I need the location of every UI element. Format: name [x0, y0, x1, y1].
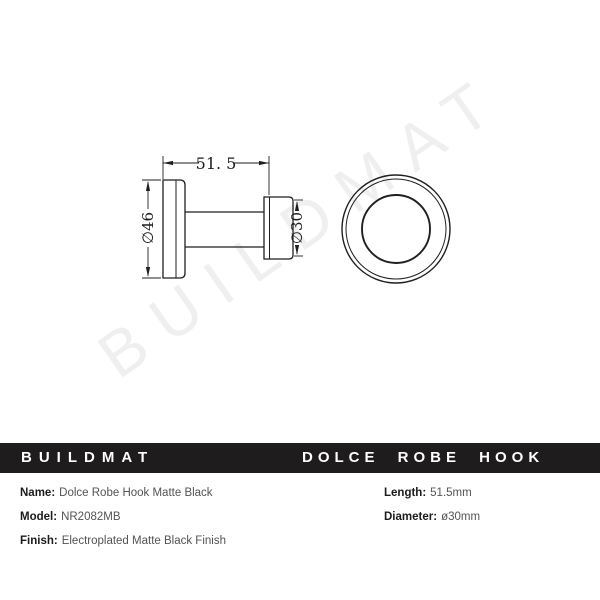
product-spec-sheet: BUILDMAT 51. 5 ∅46	[0, 0, 600, 600]
head-diameter-label: ∅30	[288, 212, 306, 244]
spec-value: NR2082MB	[61, 511, 120, 523]
side-view-wall-plate	[163, 180, 185, 278]
front-view-chamfer-circle	[346, 179, 446, 279]
technical-drawing: 51. 5 ∅46	[0, 0, 600, 440]
dim-arrow-right	[259, 161, 269, 165]
dim-arrow-down	[146, 267, 150, 277]
product-title: DOLCE ROBE HOOK	[302, 443, 544, 473]
spec-value: Dolce Robe Hook Matte Black	[59, 487, 212, 499]
front-view	[342, 175, 450, 283]
title-bar: BUILDMAT DOLCE ROBE HOOK	[0, 443, 600, 473]
spec-row-name: Name:Dolce Robe Hook Matte Black	[20, 486, 226, 500]
spec-label: Model:	[20, 511, 57, 523]
front-view-outer-circle	[342, 175, 450, 283]
head-diameter-dimension: ∅30	[288, 200, 306, 256]
spec-column-right: Length:51.5mm Diameter:ø30mm	[384, 486, 480, 534]
spec-row-model: Model:NR2082MB	[20, 510, 226, 524]
brand-name: BUILDMAT	[21, 443, 154, 473]
spec-row-length: Length:51.5mm	[384, 486, 480, 500]
length-dimension: 51. 5	[163, 154, 269, 195]
spec-label: Finish:	[20, 535, 58, 547]
dim-arrow-up	[295, 201, 299, 211]
dim-arrow-down	[295, 245, 299, 255]
spec-row-finish: Finish:Electroplated Matte Black Finish	[20, 534, 226, 548]
spec-row-diameter: Diameter:ø30mm	[384, 510, 480, 524]
dim-arrow-up	[146, 181, 150, 191]
spec-label: Length:	[384, 487, 426, 499]
spec-label: Diameter:	[384, 511, 437, 523]
plate-diameter-label: ∅46	[139, 212, 157, 244]
spec-value: ø30mm	[441, 511, 480, 523]
side-view-stem	[185, 212, 264, 247]
front-view-inner-circle	[362, 195, 430, 263]
spec-column-left: Name:Dolce Robe Hook Matte Black Model:N…	[20, 486, 226, 558]
spec-value: Electroplated Matte Black Finish	[62, 535, 226, 547]
length-dimension-label: 51. 5	[196, 154, 237, 173]
dim-arrow-left	[163, 161, 173, 165]
spec-value: 51.5mm	[430, 487, 472, 499]
plate-diameter-dimension: ∅46	[139, 180, 161, 278]
spec-label: Name:	[20, 487, 55, 499]
